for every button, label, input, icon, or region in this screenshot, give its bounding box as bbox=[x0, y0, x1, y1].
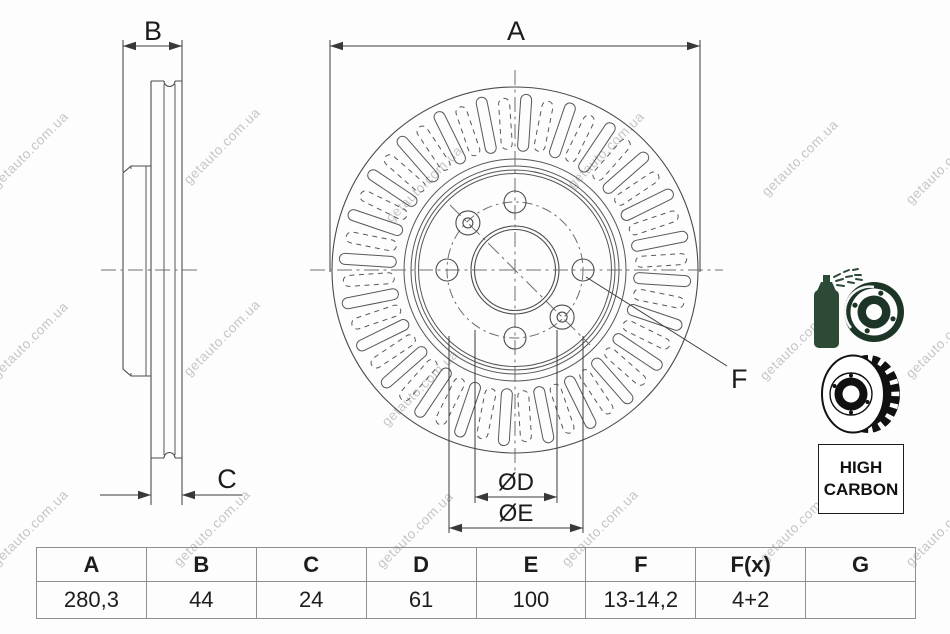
table-header-cell: B bbox=[146, 548, 256, 582]
dim-label-b: B bbox=[144, 16, 162, 46]
table-header-cell: A bbox=[37, 548, 147, 582]
table-value-cell: 4+2 bbox=[696, 582, 806, 619]
side-view: B C bbox=[100, 16, 242, 505]
table-header-cell: D bbox=[366, 548, 476, 582]
dim-label-c: C bbox=[217, 464, 237, 494]
table-value-cell: 13-14,2 bbox=[586, 582, 696, 619]
table-value-cell: 100 bbox=[476, 582, 586, 619]
table-value-cell: 24 bbox=[256, 582, 366, 619]
table-value-cell: 280,3 bbox=[37, 582, 147, 619]
dimensions-table: A B C D E F F(x) G 280,3 44 24 61 100 13… bbox=[36, 547, 916, 619]
high-carbon-line2: CARBON bbox=[824, 479, 899, 501]
table-value-row: 280,3 44 24 61 100 13-14,2 4+2 bbox=[37, 582, 916, 619]
dim-label-d: ØD bbox=[498, 469, 534, 496]
dim-label-a: A bbox=[507, 16, 525, 46]
table-header-cell: G bbox=[806, 548, 916, 582]
table-header-cell: C bbox=[256, 548, 366, 582]
table-value-cell bbox=[806, 582, 916, 619]
table-header-cell: E bbox=[476, 548, 586, 582]
dim-label-e: ØE bbox=[499, 500, 534, 527]
table-header-row: A B C D E F F(x) G bbox=[37, 548, 916, 582]
high-carbon-badge: HIGH CARBON bbox=[818, 444, 904, 514]
dim-label-f: F bbox=[731, 364, 748, 394]
vented-disc-icon bbox=[812, 352, 904, 436]
high-carbon-line1: HIGH bbox=[840, 457, 883, 479]
brake-disc-technical-drawing-page: getauto.com.uagetauto.com.uagetauto.com.… bbox=[0, 0, 950, 634]
spray-coated-disc-icon bbox=[804, 266, 908, 354]
coated-disc-icon bbox=[844, 282, 904, 342]
table-header-cell: F bbox=[586, 548, 696, 582]
table-value-cell: 44 bbox=[146, 582, 256, 619]
table-value-cell: 61 bbox=[366, 582, 476, 619]
table-header-cell: F(x) bbox=[696, 548, 806, 582]
front-view: A ØD ØE F bbox=[310, 16, 748, 533]
